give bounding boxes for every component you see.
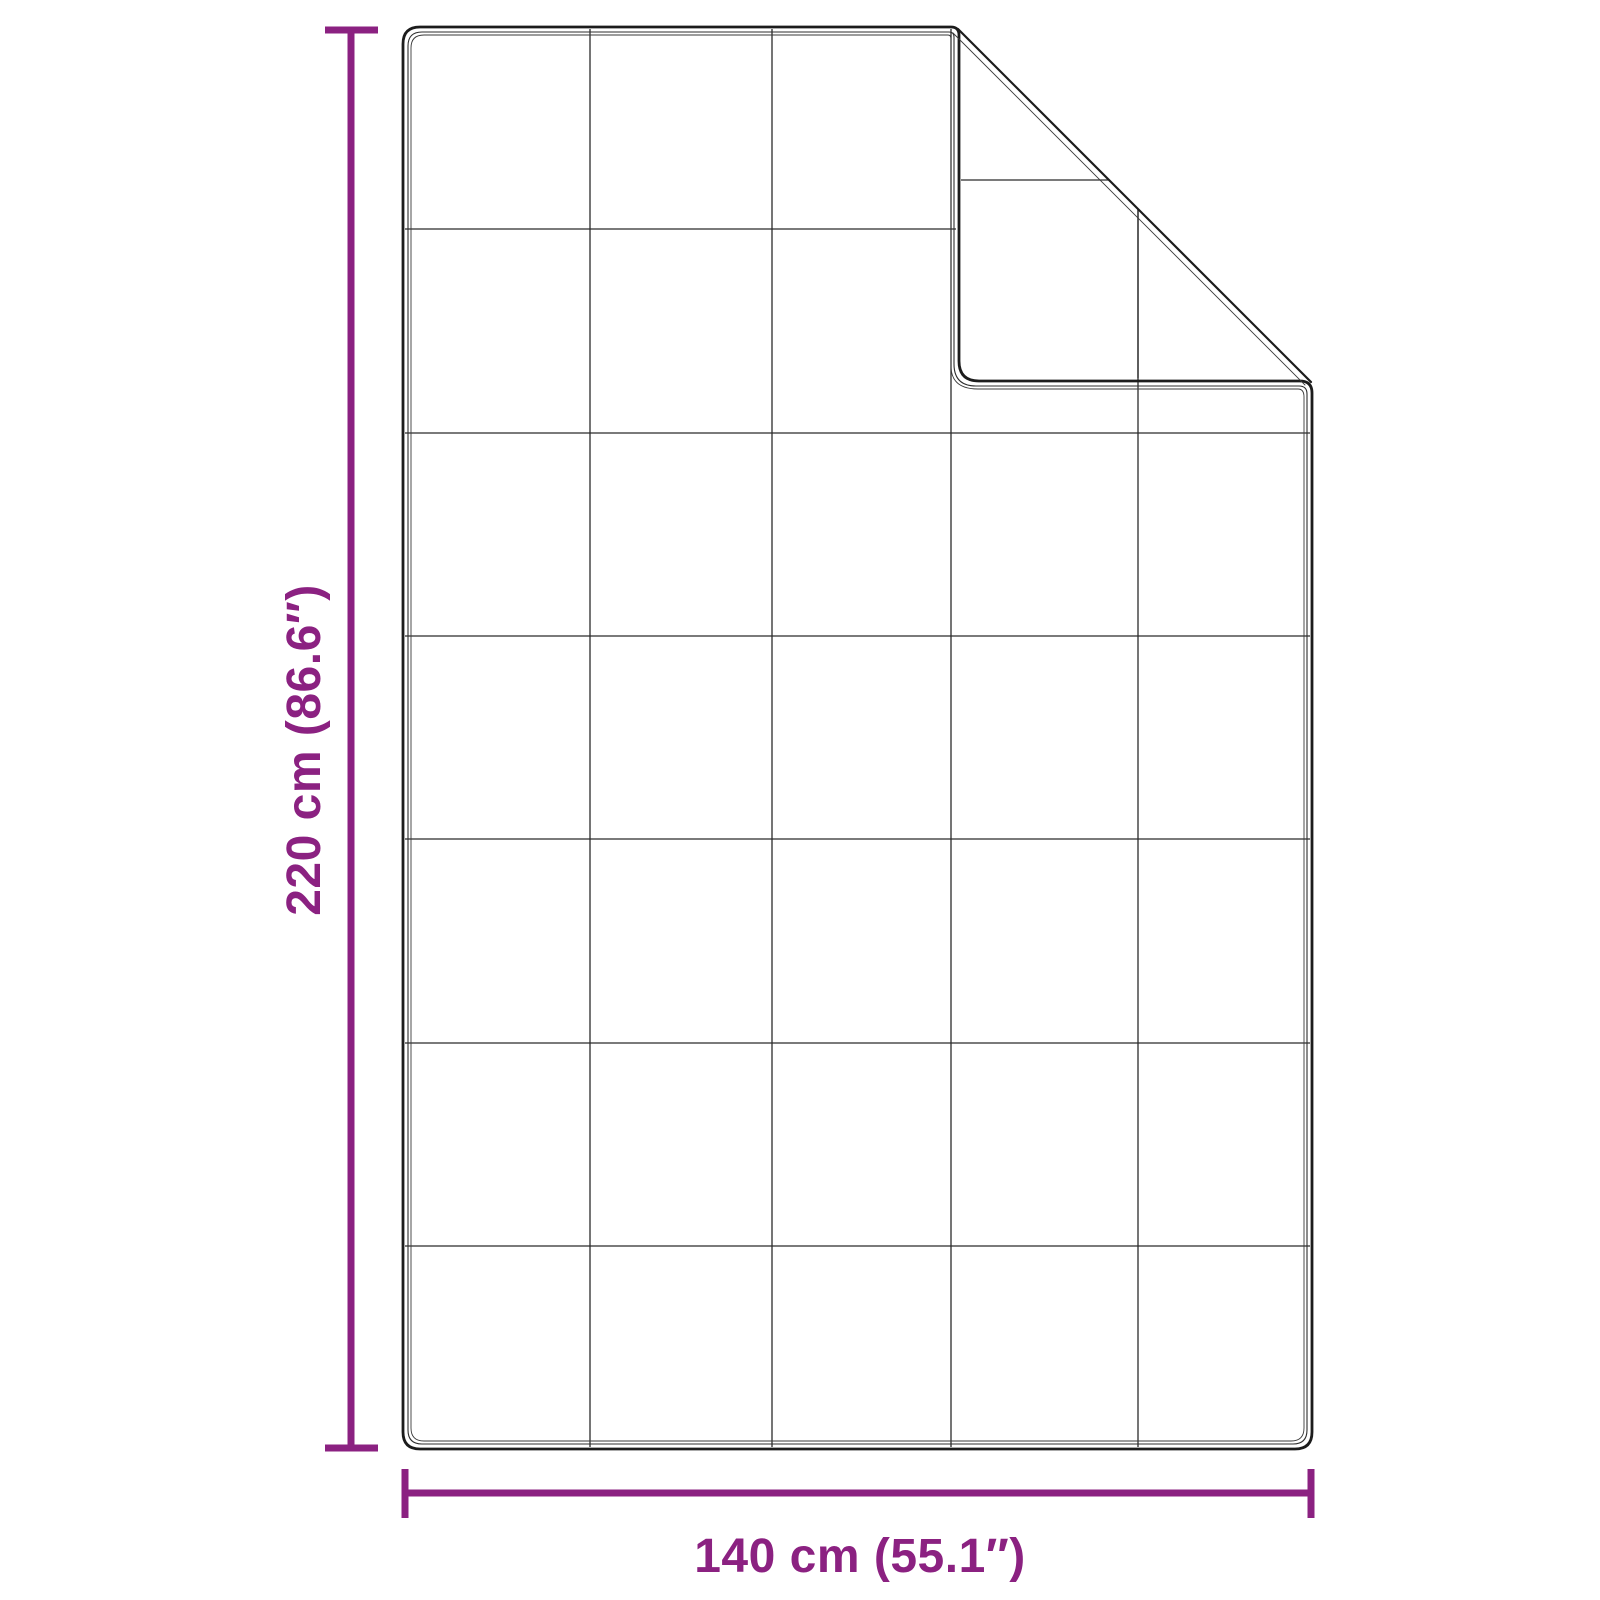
quilt-grid xyxy=(405,29,1310,1447)
height-dimension-label: 220 cm (86.6″) xyxy=(278,584,331,916)
height-dimension-line xyxy=(348,30,355,1448)
blanket-outline xyxy=(403,27,1312,1449)
width-dimension-line xyxy=(405,1490,1311,1497)
fold-diagonal-edge xyxy=(958,29,1311,382)
height-dimension-cap-bottom xyxy=(325,1445,378,1452)
fold-diagonal-edge-echo xyxy=(953,33,1305,385)
height-dimension-cap-top xyxy=(325,27,378,34)
blanket-dimension-diagram: 220 cm (86.6″) 140 cm (55.1″) xyxy=(0,0,1600,1600)
width-dimension: 140 cm (55.1″) xyxy=(402,1469,1315,1583)
width-dimension-cap-left xyxy=(402,1469,409,1518)
width-dimension-cap-right xyxy=(1308,1469,1315,1518)
height-dimension: 220 cm (86.6″) xyxy=(278,27,378,1452)
width-dimension-label: 140 cm (55.1″) xyxy=(694,1530,1026,1583)
product-diagram-canvas: 220 cm (86.6″) 140 cm (55.1″) xyxy=(0,0,1600,1600)
blanket-outline-outer xyxy=(403,27,1312,1449)
blanket-outline-echo2 xyxy=(411,35,1304,1441)
